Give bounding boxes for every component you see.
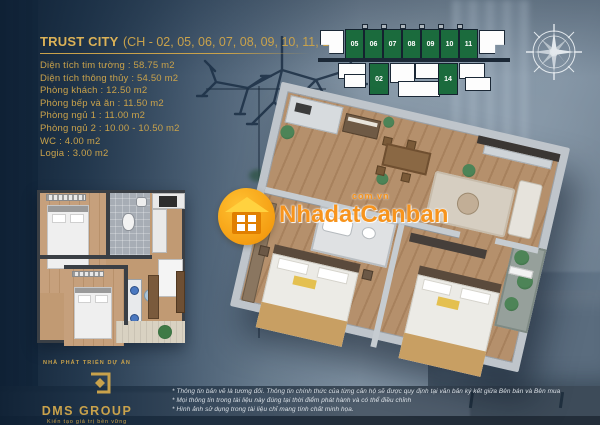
disclaimer-line: * Mọi thông tin trong tài liệu này đúng … xyxy=(172,396,592,405)
brochure-page: TRUST CITY (CH - 02, 05, 06, 07, 08, 09,… xyxy=(0,0,600,425)
wall xyxy=(106,193,110,255)
spec-line: WC : 4.00 m2 xyxy=(40,136,300,149)
developer-name: DMS GROUP xyxy=(22,404,152,418)
spec-line: Diện tích thông thủy : 54.50 m2 xyxy=(40,73,300,86)
house-body xyxy=(232,212,261,234)
unit-05: 05 xyxy=(345,29,364,59)
developer-eyebrow: NHÀ PHÁT TRIỂN DỰ ÁN xyxy=(22,360,152,366)
unit-list: (CH - 02, 05, 06, 07, 08, 09, 10, 11, 14… xyxy=(123,35,340,49)
toilet xyxy=(122,213,135,231)
kitchen-counter xyxy=(152,209,167,253)
unit-14: 14 xyxy=(438,63,458,95)
developer-block: NHÀ PHÁT TRIỂN DỰ ÁN DMS GROUP Kiến tạo … xyxy=(22,360,152,420)
unit-10: 10 xyxy=(440,29,459,59)
title-underline xyxy=(40,53,310,54)
spec-list: Diện tích tim tường : 58.75 m2 Diện tích… xyxy=(40,60,300,161)
plant xyxy=(382,116,395,129)
project-name: TRUST CITY xyxy=(40,34,119,49)
cooktop xyxy=(159,196,177,207)
plant xyxy=(503,296,520,313)
bed xyxy=(74,287,112,339)
unit-outline xyxy=(479,30,505,54)
spec-line: Diện tích tim tường : 58.75 m2 xyxy=(40,60,300,73)
unit-outline xyxy=(465,77,491,91)
house-roof xyxy=(225,197,269,212)
watermark-logo-icon xyxy=(218,188,275,245)
wall xyxy=(124,269,128,325)
disclaimer-block: * Thông tin bản vẽ là tương đối. Thông t… xyxy=(172,387,592,414)
floor-plan-2d xyxy=(37,190,185,343)
wall xyxy=(40,255,152,259)
cooktop xyxy=(294,102,312,114)
spec-line: Logia : 3.00 m2 xyxy=(40,148,300,161)
bathroom-1 xyxy=(108,193,150,255)
unit-11: 11 xyxy=(459,29,478,59)
developer-logo-icon xyxy=(74,370,100,396)
nightstand xyxy=(258,245,270,257)
wardrobe xyxy=(176,271,185,313)
kitchen-counter xyxy=(152,193,185,209)
dining-chair xyxy=(400,172,411,183)
console-cabinet xyxy=(342,113,381,140)
unit-06: 06 xyxy=(364,29,383,59)
compass-icon xyxy=(524,22,584,82)
wall xyxy=(64,265,128,269)
unit-outline xyxy=(320,30,344,54)
developer-tagline: Kiến tạo giá trị bền vững xyxy=(22,419,152,425)
unit-08: 08 xyxy=(402,29,421,59)
core-outline xyxy=(415,63,439,79)
spec-line: Phòng khách : 12.50 m2 xyxy=(40,85,300,98)
disclaimer-line: * Hình ảnh sử dụng trong tài liệu chỉ ma… xyxy=(172,405,592,414)
sink xyxy=(136,197,147,207)
spec-line: Phòng ngủ 1 : 11.00 m2 xyxy=(40,110,300,123)
core-outline xyxy=(398,81,440,97)
washer xyxy=(130,286,139,295)
corridor-line xyxy=(318,58,510,62)
plant xyxy=(158,325,172,339)
unit-07: 07 xyxy=(383,29,402,59)
unit-outline xyxy=(344,74,366,88)
dining-table-3d xyxy=(381,143,431,176)
page-title: TRUST CITY (CH - 02, 05, 06, 07, 08, 09,… xyxy=(40,33,340,49)
media-shelf xyxy=(409,233,487,259)
watermark-text: NhadatCanban xyxy=(279,201,448,229)
nightstand xyxy=(361,269,373,281)
unit-09: 09 xyxy=(421,29,440,59)
building-key-plan: 05 06 07 08 09 10 11 02 14 xyxy=(316,22,516,98)
bed-3d xyxy=(401,265,502,368)
spec-line: Phòng ngủ 2 : 10.00 - 10.50 m2 xyxy=(40,123,300,136)
radiator xyxy=(46,194,86,201)
core-outline xyxy=(390,63,415,83)
bedroom-2 xyxy=(64,269,124,346)
desk xyxy=(148,275,159,319)
disclaimer-line: * Thông tin bản vẽ là tương đối. Thông t… xyxy=(172,387,592,396)
spec-line: Phòng bếp và ăn : 11.50 m2 xyxy=(40,98,300,111)
watermark-domain: com.vn xyxy=(352,191,390,201)
bed xyxy=(47,205,89,269)
radiator xyxy=(72,271,104,277)
unit-02: 02 xyxy=(369,63,389,95)
plant xyxy=(279,124,296,141)
